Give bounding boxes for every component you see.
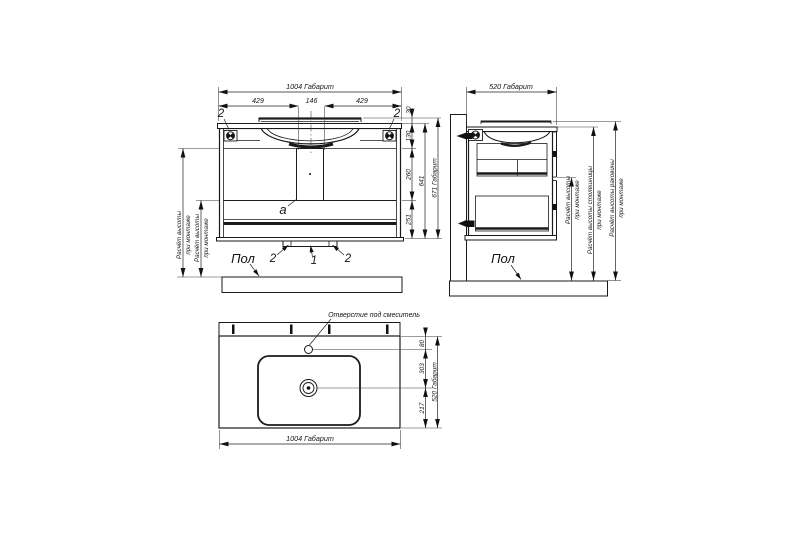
cam-lock-icon [383, 131, 396, 142]
dim-671-total-label: 671 Габарит [431, 158, 439, 198]
wall-mount-tick [386, 325, 389, 335]
foot-callout-left: 2 [269, 253, 277, 265]
front-view: a 2 2 2 1 [176, 82, 442, 293]
dim-1004-bottom-label: 1004 Габарит [286, 434, 334, 443]
mount-calc-inner-text-1: Расчёт высоты [194, 214, 201, 262]
dim-429-right-label: 429 [356, 98, 368, 105]
calc-sink-text-2: при монтаже [618, 178, 625, 218]
wall-mount-tick [232, 325, 235, 335]
side-cabinet-body [465, 127, 557, 240]
front-floor-label: Пол [231, 251, 255, 266]
mount-calc-outer-text-2: при монтаже [185, 215, 192, 255]
calc-countertop-text-1: Расчёт высоты столешницы [587, 165, 594, 254]
dim-520-total-label: 520 Габарит [431, 362, 439, 402]
dim-217-label: 217 [419, 402, 426, 414]
side-floor-callout: Пол [491, 251, 521, 280]
wall-mount-tick [328, 325, 331, 335]
drawing-sheet: a 2 2 2 1 [0, 0, 800, 538]
dim-251-label: 251 [406, 214, 413, 226]
dim-80-label: 80 [419, 340, 426, 348]
drawer-runner-clip [553, 151, 558, 157]
dim-429-left-label: 429 [252, 98, 264, 105]
side-view: 520 Габарит Расчёт высоты при монтаже Ра… [450, 82, 626, 296]
foot-callout-right: 2 [344, 253, 352, 265]
dim-30-label: 30 [406, 106, 413, 114]
foot-callout-center: 1 [311, 255, 317, 267]
dim-641-label: 641 [419, 175, 426, 186]
mount-calc-outer-text-1: Расчёт высоты [176, 211, 183, 259]
calc-countertop-text-2: при монтаже [596, 190, 603, 230]
dim-260-label: 260 [406, 169, 413, 181]
lower-drawer-box [476, 196, 549, 231]
side-floor-label: Пол [491, 251, 515, 266]
siphon-area-label: a [279, 202, 286, 217]
dim-130-label: 130 [406, 130, 413, 141]
drain-hole [300, 380, 317, 397]
calc-sink-text-1: Расчёт высоты раковины [609, 159, 616, 237]
vanity-technical-drawing: a 2 2 2 1 [0, 0, 800, 538]
front-feet: 2 1 2 [269, 241, 352, 267]
front-floor-hatch [222, 277, 402, 293]
wall-mount-bracket-icon [458, 220, 475, 227]
dim-total-width-label: 1004 Габарит [286, 82, 334, 91]
dim-303-label: 303 [419, 363, 426, 374]
drawer-runner-clip [553, 204, 558, 210]
wall-mount-bracket-icon [457, 133, 473, 140]
front-countertop [218, 124, 402, 129]
clip-callout-left: 2 [217, 108, 225, 120]
front-mount-calc-dimensions: Расчёт высоты при монтаже Расчёт высоты … [176, 149, 222, 278]
dim-146-label: 146 [306, 98, 318, 105]
top-view: Отверстие под смеситель 80 303 217 520 Г… [219, 311, 442, 449]
calc-height-text-2: при монтаже [574, 180, 581, 220]
side-floor-hatch [450, 281, 608, 296]
front-bottom-trim [217, 238, 404, 242]
calc-height-text-1: Расчёт высоты [565, 176, 572, 224]
faucet-hole-label: Отверстие под смеситель [328, 311, 420, 319]
wall-mount-tick [290, 325, 293, 335]
dim-depth-total-label: 520 Габарит [489, 82, 533, 91]
cam-lock-icon [224, 131, 237, 142]
side-wall-hatch [451, 115, 467, 282]
top-wall-hatch [219, 323, 400, 337]
mount-calc-inner-text-2: при монтаже [203, 218, 210, 258]
side-bottom-trim [465, 236, 557, 241]
faucet-hole [305, 346, 313, 354]
